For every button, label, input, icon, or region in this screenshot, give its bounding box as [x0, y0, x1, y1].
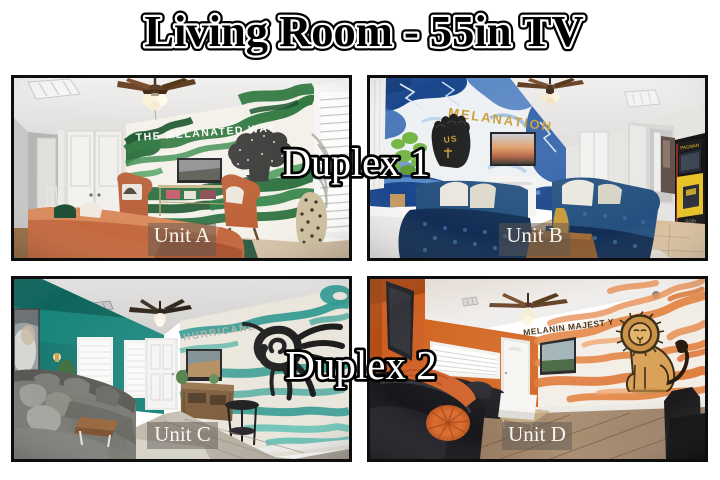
svg-text:Living Room - 55in TV: Living Room - 55in TV [144, 6, 583, 56]
svg-text:Living Room - 55in TV: Living Room - 55in TV [144, 6, 583, 56]
svg-text:Living Room - 55in TV: Living Room - 55in TV [144, 6, 583, 56]
